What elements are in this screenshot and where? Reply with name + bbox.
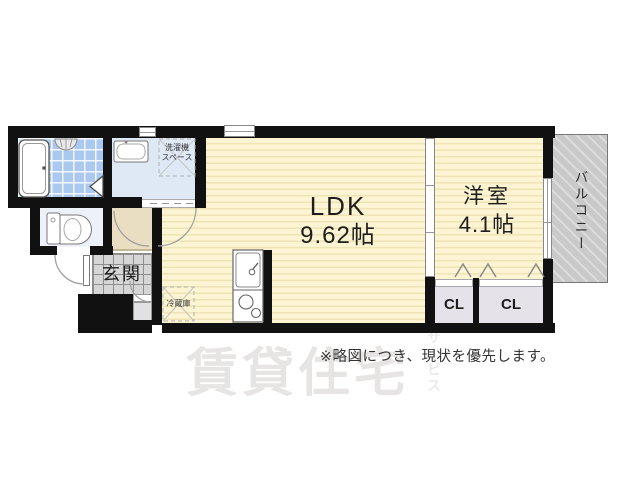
toilet-icon [47, 213, 91, 244]
bathtub-icon [19, 140, 49, 197]
closet-left-label: CL [435, 296, 473, 313]
washbasin-icon [114, 141, 148, 163]
ldk-size: 9.62帖 [243, 222, 433, 250]
western-room-name: 洋室 [436, 185, 538, 209]
refrigerator-label: 冷蔵庫 [163, 299, 194, 309]
washer-space-label: 洗濯機 スペース [159, 143, 195, 163]
closet-folding-door-marks [455, 264, 544, 277]
ldk-door-swing-arc [158, 208, 196, 246]
western-room-size: 4.1帖 [436, 212, 538, 237]
kitchen-unit-icon [233, 250, 263, 322]
ldk-room-label: LDK 9.62帖 [243, 192, 433, 249]
washer-space-line2: スペース [159, 153, 195, 163]
shower-icon [55, 139, 77, 150]
western-room-label: 洋室 4.1帖 [436, 185, 538, 237]
washer-space-line1: 洗濯機 [159, 143, 195, 153]
hallway-door-swing-arc [114, 211, 149, 246]
front-door-swing-arc [55, 255, 84, 284]
balcony-label: バルコニー [570, 170, 590, 253]
balcony-label-wrap: バルコニー [551, 140, 608, 283]
entrance-label: 玄関 [94, 264, 150, 285]
floor-plan: 賃貸住宅 サービス [0, 0, 640, 480]
bathroom-folding-door-icon [90, 176, 103, 197]
closet-right-label: CL [479, 296, 543, 313]
ldk-name: LDK [243, 192, 433, 222]
disclaimer-text: ※略図につき、現状を優先します。 [280, 345, 555, 366]
